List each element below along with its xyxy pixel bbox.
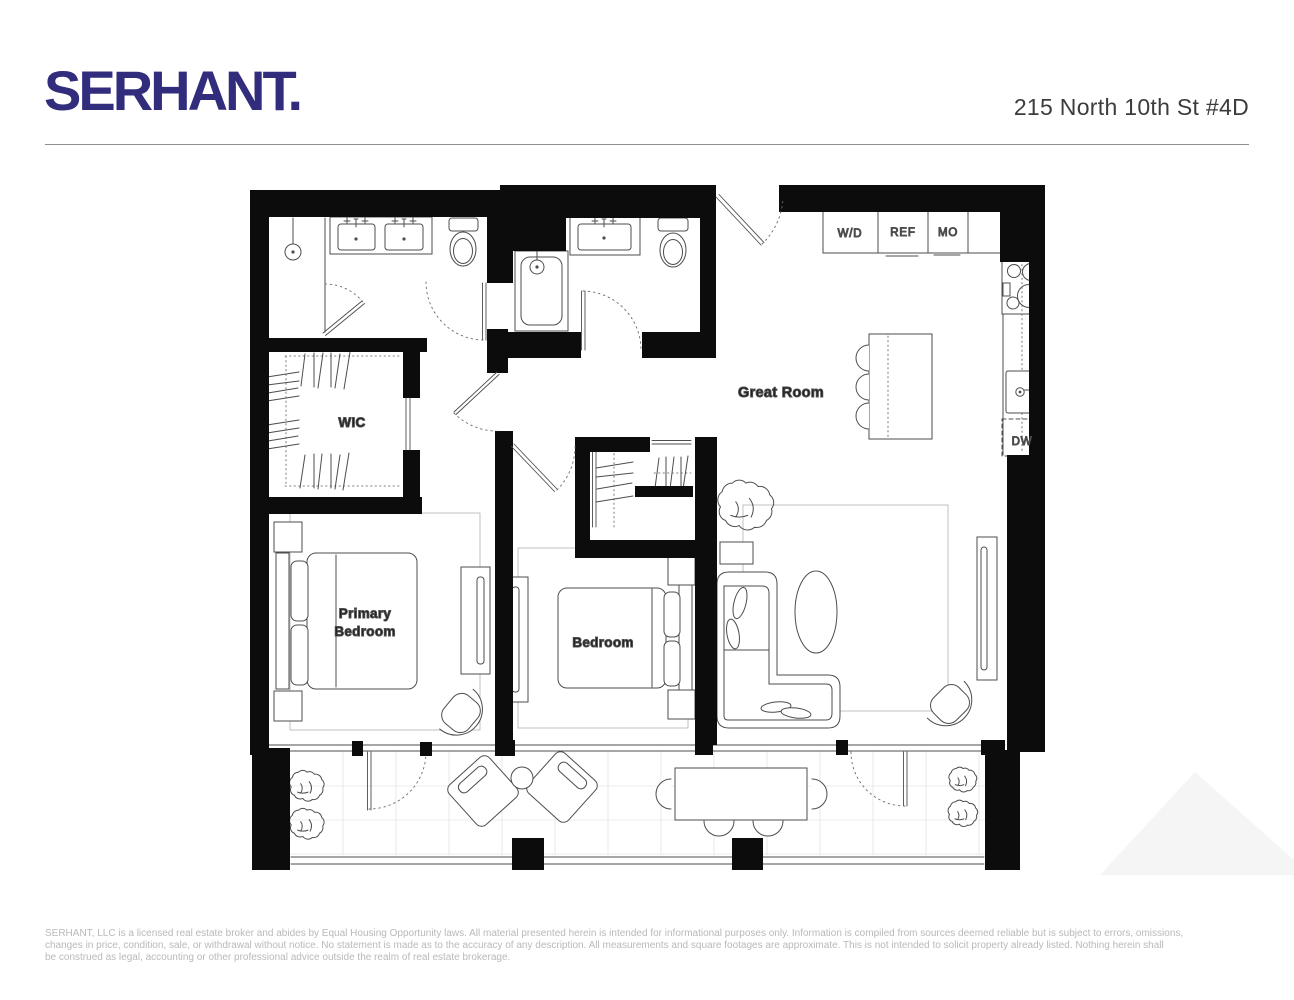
label-primary-bedroom: Bedroom: [334, 624, 395, 639]
living-area: [717, 480, 997, 736]
pillow: [291, 561, 308, 621]
bed: [307, 553, 417, 689]
primary-bathroom: [285, 217, 478, 332]
sink: [338, 224, 375, 250]
accent-chair: [920, 674, 982, 736]
walk-in-closet: [267, 352, 400, 490]
side-table: [511, 767, 533, 789]
nightstand: [668, 690, 695, 719]
floor-plan-svg: W/D REF MO DW Great Room WIC Primary Bed…: [0, 0, 1294, 1000]
nightstand: [668, 556, 695, 585]
pillow: [291, 625, 308, 685]
cabinet: [968, 208, 1002, 253]
nightstand: [274, 522, 302, 552]
pillow: [664, 641, 680, 686]
coffee-table: [795, 571, 837, 653]
label-washer-dryer: W/D: [838, 228, 863, 240]
disclaimer: SERHANT, LLC is a licensed real estate b…: [45, 928, 1285, 964]
planter-icon: [948, 800, 978, 826]
plan-content: W/D REF MO DW Great Room WIC Primary Bed…: [250, 185, 1045, 870]
planter-icon: [290, 808, 325, 839]
dining-chair: [812, 779, 827, 809]
balcony-door-swing: [851, 752, 905, 806]
label-bedroom: Bedroom: [572, 635, 633, 650]
side-table: [720, 542, 753, 564]
label-dishwasher: DW: [1012, 436, 1033, 448]
tub: [515, 251, 568, 331]
disclaimer-line: be construed as legal, accounting or oth…: [45, 952, 1285, 964]
outdoor-dining-table: [675, 768, 807, 820]
disclaimer-line: changes in price, condition, sale, or wi…: [45, 940, 1285, 952]
label-primary-bedroom: Primary: [339, 606, 392, 621]
windows: [269, 745, 1005, 864]
stool: [856, 345, 869, 371]
lounge-chair: [524, 749, 600, 825]
hall-closets: [593, 441, 692, 529]
disclaimer-line: SERHANT, LLC is a licensed real estate b…: [45, 928, 1285, 940]
dresser: [461, 567, 490, 674]
headboard: [679, 585, 692, 691]
kitchen-island: [869, 334, 932, 439]
dining-chair: [656, 779, 671, 809]
lounge-chair: [445, 753, 521, 829]
label-wic: WIC: [338, 415, 365, 430]
sink: [385, 224, 423, 250]
stool: [856, 403, 869, 429]
toilet: [449, 218, 478, 231]
balcony: [290, 749, 985, 855]
balcony-door-swing: [369, 752, 426, 809]
label-microwave: MO: [938, 227, 958, 239]
planter-icon: [949, 767, 977, 792]
dining-chair: [753, 821, 783, 836]
pillow: [664, 592, 680, 637]
label-great-room: Great Room: [738, 385, 824, 401]
label-refrigerator: REF: [890, 227, 915, 239]
toilet: [658, 218, 688, 231]
dining-chair: [704, 821, 734, 836]
headboard: [276, 553, 289, 689]
background-watermark: [1100, 772, 1294, 875]
stool: [856, 374, 869, 400]
accent-chair: [432, 683, 493, 746]
nightstand: [274, 691, 302, 721]
floor-plan-page: SERHANT. 215 North 10th St #4D: [0, 0, 1294, 1000]
